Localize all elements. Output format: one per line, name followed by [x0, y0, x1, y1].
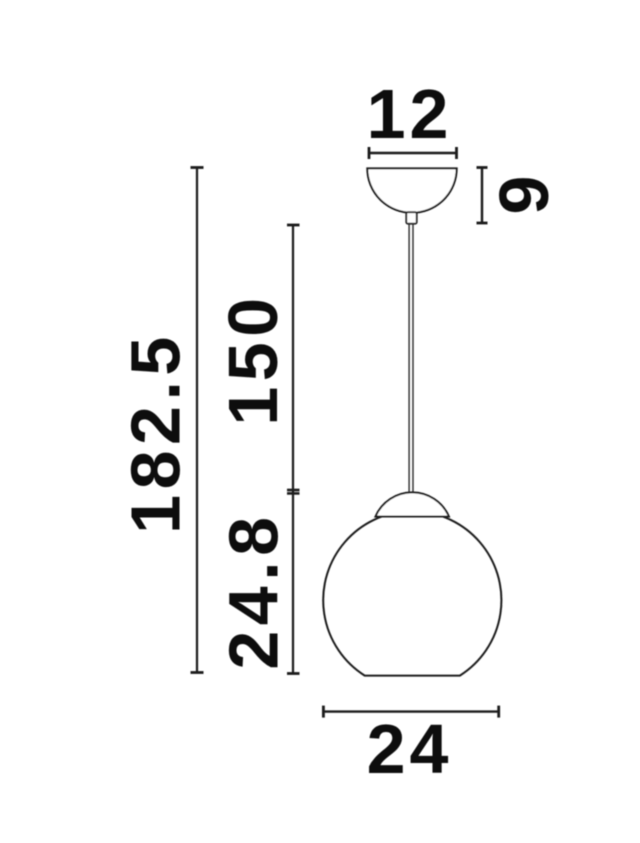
svg-text:24.8: 24.8 [215, 511, 293, 669]
svg-text:182.5: 182.5 [117, 331, 195, 534]
svg-text:24: 24 [367, 710, 453, 788]
svg-text:150: 150 [214, 292, 292, 425]
svg-text:12: 12 [367, 75, 453, 153]
svg-text:9: 9 [485, 176, 563, 215]
